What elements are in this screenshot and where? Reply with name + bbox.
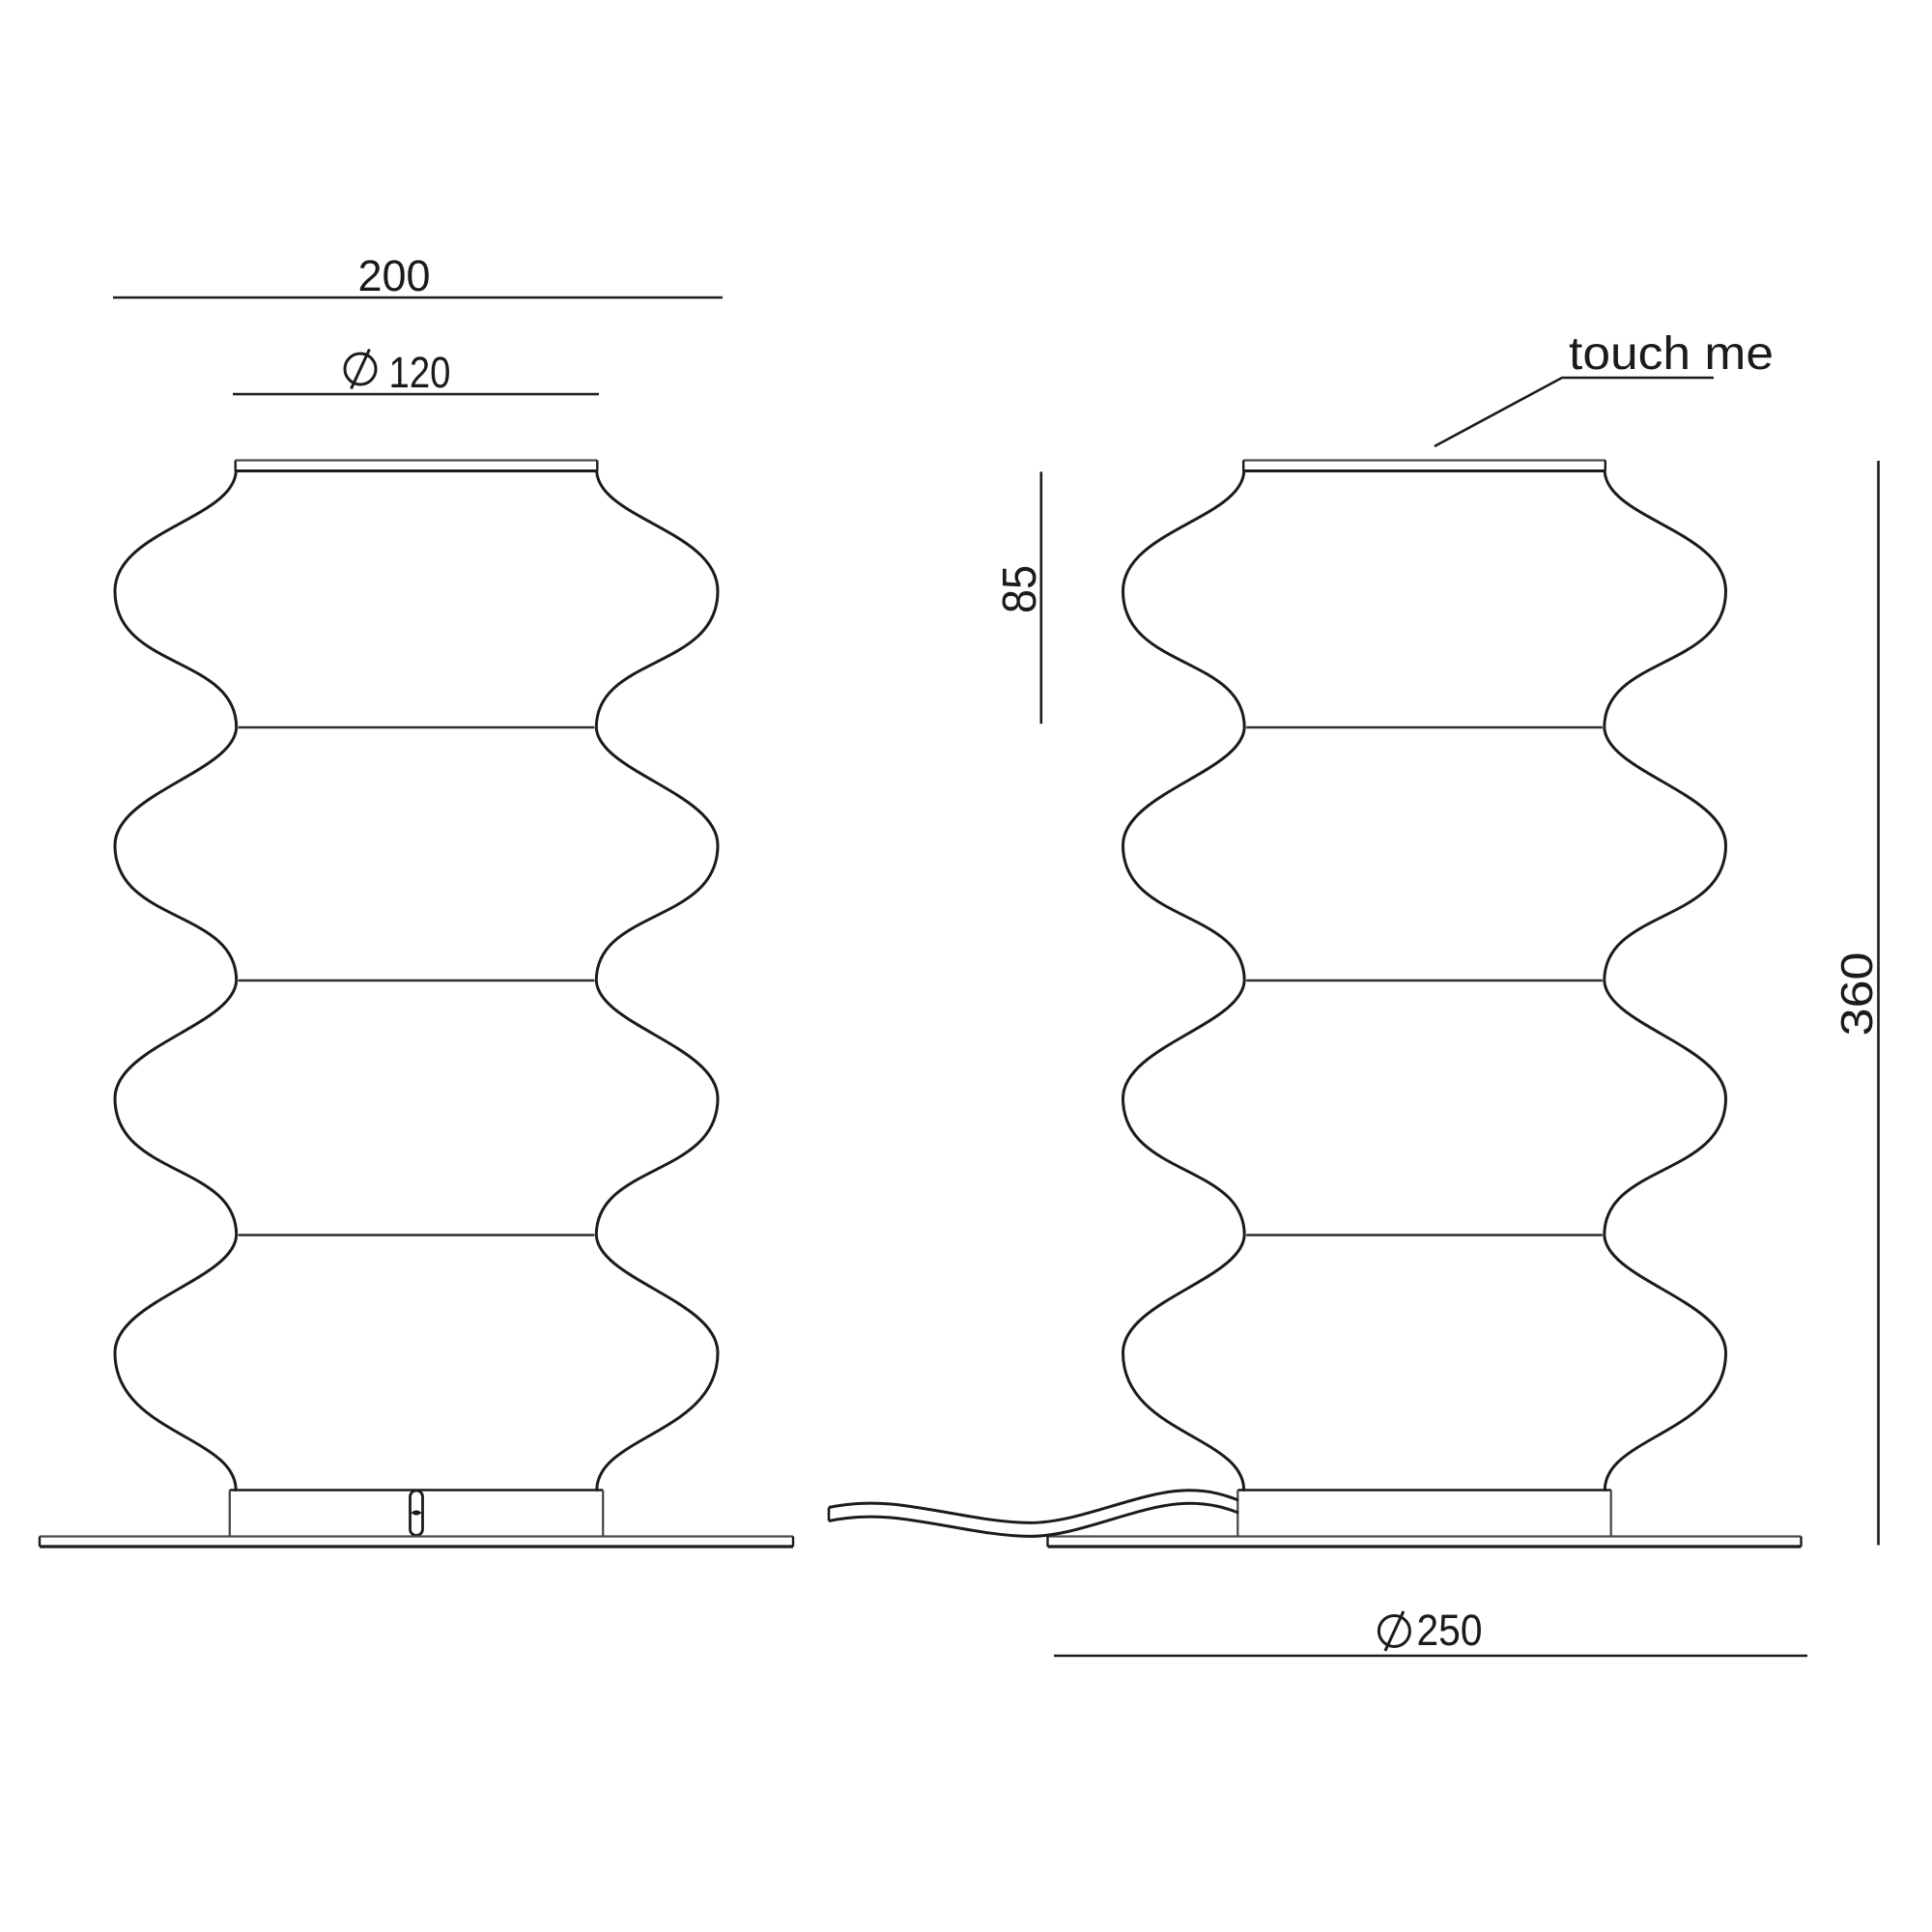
svg-text:360: 360: [1832, 952, 1882, 1037]
svg-text:200: 200: [357, 251, 430, 300]
svg-text:85: 85: [994, 565, 1046, 613]
svg-text:touch me: touch me: [1569, 328, 1774, 380]
svg-text:250: 250: [1417, 1605, 1483, 1655]
svg-text:120: 120: [389, 348, 451, 397]
